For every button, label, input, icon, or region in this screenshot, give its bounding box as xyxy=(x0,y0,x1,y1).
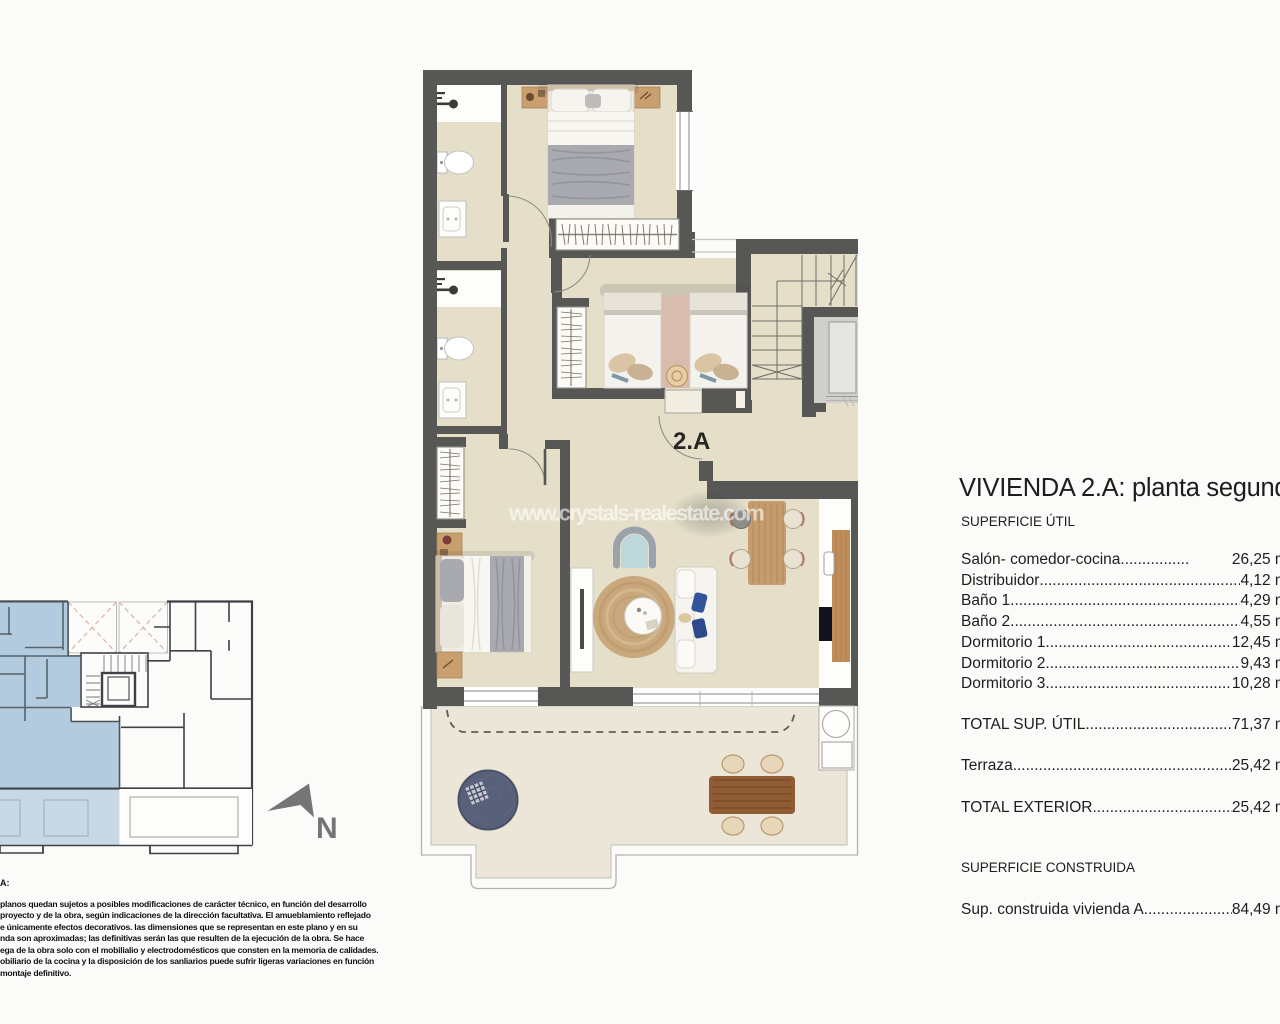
svg-text:2.A: 2.A xyxy=(673,428,710,455)
svg-text:www.crystals-realestate.com: www.crystals-realestate.com xyxy=(508,501,764,526)
svg-text:N: N xyxy=(316,812,338,845)
